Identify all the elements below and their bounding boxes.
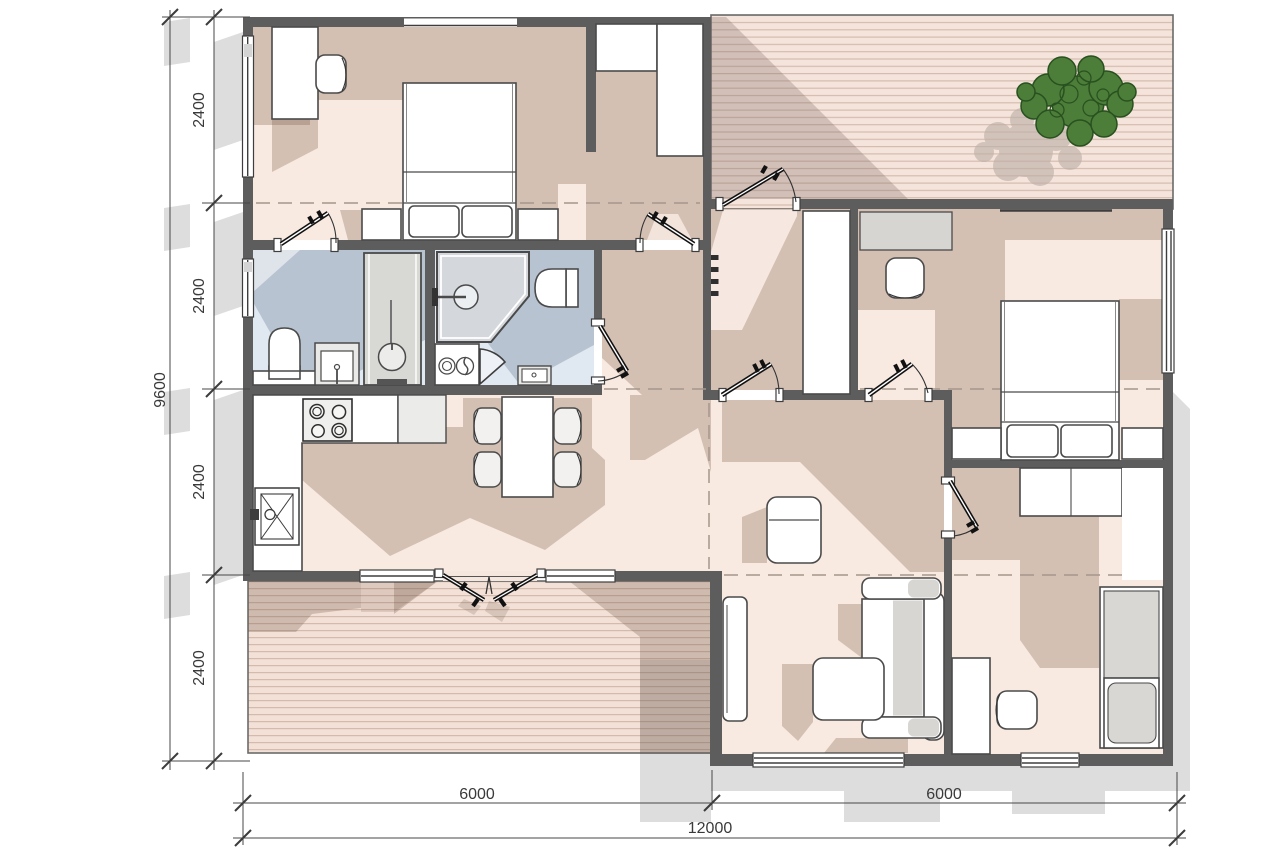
svg-text:2400: 2400 [191, 278, 208, 314]
svg-text:6000: 6000 [459, 786, 495, 803]
svg-text:2400: 2400 [191, 92, 208, 128]
svg-text:6000: 6000 [926, 786, 962, 803]
svg-text:9600: 9600 [152, 372, 169, 408]
svg-text:12000: 12000 [688, 820, 733, 837]
svg-text:2400: 2400 [191, 464, 208, 500]
svg-text:2400: 2400 [191, 650, 208, 686]
